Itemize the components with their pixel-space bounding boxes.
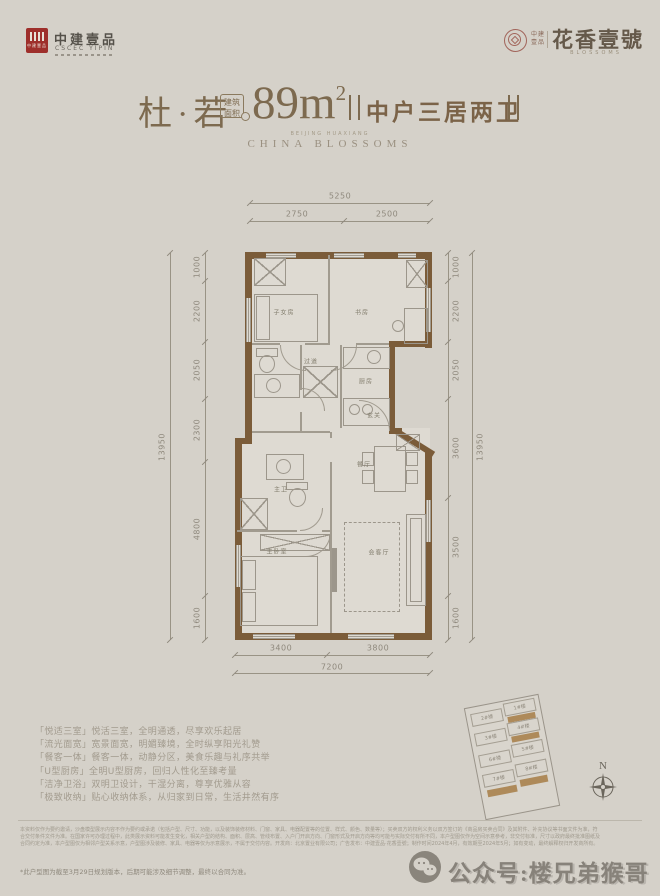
dim-label: 2500	[376, 210, 398, 219]
dim-label: 2750	[286, 210, 308, 219]
toilet	[259, 355, 275, 373]
cabinet	[406, 260, 428, 288]
building: 6#楼	[478, 749, 512, 768]
watermark-text: 公众号:楼兄弟猴哥	[448, 854, 649, 888]
dim-label: 3400	[270, 644, 292, 653]
building: 2#楼	[470, 708, 504, 727]
cscec-logo-icon: 中建壹品	[26, 28, 48, 53]
partition	[356, 343, 389, 345]
window	[348, 634, 394, 639]
room-label-study: 书房	[355, 308, 369, 317]
unit-tagline: 中户三居两卫	[366, 93, 522, 127]
rug	[344, 522, 400, 612]
room-label-master: 主卧室	[266, 547, 287, 556]
disclaimer: 本资料仅作为要约邀请，沙盘模型展示内容不作为要约或承诺（包括户型、尺寸、功能，以…	[20, 827, 640, 848]
window	[426, 500, 431, 542]
wechat-icon	[408, 850, 442, 884]
logo-mark-text: 中建壹品	[26, 43, 48, 49]
room-label-master-bath: 主卫	[274, 485, 288, 494]
dim-label: 13950	[476, 433, 485, 461]
compass-rose-icon	[588, 772, 618, 802]
compass: N	[588, 760, 618, 804]
room-label-kitchen: 厨房	[359, 377, 373, 386]
wall	[425, 452, 432, 640]
building-highlight	[487, 785, 518, 798]
dim-label: 3800	[367, 644, 389, 653]
room-label-entry: 玄关	[367, 411, 381, 420]
partition	[328, 255, 330, 345]
plan-version-note: *此户型图为截至3月29日规划版本，后期可能涉及细节调整，最终以合同为准。	[20, 866, 250, 876]
dim-line	[250, 221, 430, 222]
dim-line	[448, 253, 449, 640]
wall	[245, 252, 252, 444]
dim-label: 1000	[452, 256, 461, 278]
dim-label: 3500	[452, 536, 461, 558]
unit-area: 89m2	[252, 76, 346, 130]
burner	[349, 404, 360, 415]
dim-label: 7200	[321, 663, 343, 672]
dim-label: 1600	[193, 607, 202, 629]
subtitle-small: BEIJING HUAXIANG	[230, 131, 430, 137]
window	[246, 298, 251, 342]
dim-label: 1600	[452, 607, 461, 629]
features-list: 「悦适三室」悦活三室，全明通透，尽享欢乐起居 「流光面宽」宽景面宽，明媚臻境，全…	[35, 726, 279, 805]
partition	[237, 530, 297, 532]
kitchen-sink	[367, 350, 381, 364]
dim-label: 5250	[329, 192, 351, 201]
desk	[404, 308, 428, 344]
tv	[332, 548, 337, 592]
dim-line	[205, 253, 206, 640]
poster: 中建壹品 中建壹品 CSCEC YIPIN 中建 壹品 花香壹號 BLOSSOM…	[0, 0, 660, 896]
double-bar-left	[349, 95, 360, 120]
chair	[362, 470, 374, 484]
feature-item: 「悦适三室」悦活三室，全明通透，尽享欢乐起居	[35, 726, 279, 739]
dim-label: 4800	[193, 518, 202, 540]
footer-divider	[18, 820, 642, 821]
partition	[300, 412, 302, 432]
brand-name-en: CSCEC YIPIN	[55, 45, 114, 52]
dim-line	[235, 655, 430, 656]
dim-label: 2050	[452, 359, 461, 381]
partition	[330, 432, 332, 438]
toilet	[289, 488, 306, 507]
partition	[305, 343, 330, 345]
chair	[406, 452, 418, 466]
room-label-corridor: 过道	[304, 357, 318, 366]
window	[334, 253, 364, 258]
logo-divider	[547, 31, 548, 48]
shower	[240, 498, 268, 530]
chair	[406, 470, 418, 484]
feature-item: 「洁净卫浴」双明卫设计，干湿分离，尊享优雅从容	[35, 779, 279, 792]
building: 3#楼	[474, 728, 508, 747]
watermark: 公众号:楼兄弟猴哥	[408, 848, 648, 888]
dim-label: 2300	[193, 419, 202, 441]
pillow	[256, 296, 270, 340]
project-name-en: BLOSSOMS	[552, 50, 640, 56]
feature-item: 「流光面宽」宽景面宽，明媚臻境，全时纵享阳光礼赞	[35, 739, 279, 752]
partition	[252, 343, 280, 345]
wardrobe	[254, 258, 286, 286]
plan-notch	[395, 345, 430, 428]
sofa-seat	[410, 518, 422, 602]
building-highlight	[520, 775, 549, 787]
room-label-dining: 餐厅	[357, 460, 371, 469]
disclaimer-line: 合同约定为准，本户型图仅为相邻户型关系示意，户型图涉及装修、家具、电器等仅为示意…	[20, 841, 640, 848]
dim-label: 3600	[452, 437, 461, 459]
sink	[266, 378, 281, 393]
room-label-living: 会客厅	[368, 548, 389, 557]
dim-label: 1000	[193, 256, 202, 278]
window	[253, 634, 295, 639]
room-label-kids: 子女房	[273, 308, 294, 317]
feature-item: 「U型厨房」全明U型厨房，回归人性化至臻考量	[35, 766, 279, 779]
feature-item: 「餐客一体」餐客一体，动静分区，美食乐趣与礼序共举	[35, 752, 279, 765]
partition	[330, 462, 332, 530]
dining-table	[374, 446, 406, 492]
brand-tagline-line	[55, 54, 113, 56]
logo-pattern	[30, 32, 44, 41]
unit-name: 杜·若	[138, 86, 232, 135]
dim-label: 2050	[193, 359, 202, 381]
dim-line	[472, 253, 473, 640]
window	[398, 253, 416, 258]
compass-n-label: N	[588, 760, 618, 772]
dim-label: 13950	[158, 433, 167, 461]
chair	[392, 320, 404, 332]
dim-line	[250, 203, 430, 204]
cabinet	[303, 366, 338, 398]
subtitle-en: CHINA BLOSSOMS	[200, 138, 460, 150]
sink	[276, 459, 291, 474]
double-bar-right	[508, 95, 519, 120]
site-plan: 2#楼 1#楼 3#楼 4#楼 6#楼 5#楼 7#楼 8#楼	[464, 694, 560, 820]
seal-small-text: 中建 壹品	[531, 31, 545, 47]
dim-line	[235, 673, 430, 674]
feature-item: 「极致收纳」贴心收纳体系，从归家到日常，生活井然有序	[35, 792, 279, 805]
seal-icon	[504, 29, 527, 52]
dim-line	[170, 253, 171, 640]
partition	[252, 431, 330, 433]
disclaimer-line: 合交付条件文件为准。在国家许可办理过程中，此类展示资料可能发生变化，相关户型的结…	[20, 834, 640, 841]
pillow	[242, 592, 256, 622]
dim-label: 2200	[452, 300, 461, 322]
disclaimer-line: 本资料仅作为要约邀请，沙盘模型展示内容不作为要约或承诺（包括户型、尺寸、功能，以…	[20, 827, 640, 834]
pillow	[242, 560, 256, 590]
badge-seal-dot	[241, 112, 250, 121]
dim-label: 2200	[193, 300, 202, 322]
